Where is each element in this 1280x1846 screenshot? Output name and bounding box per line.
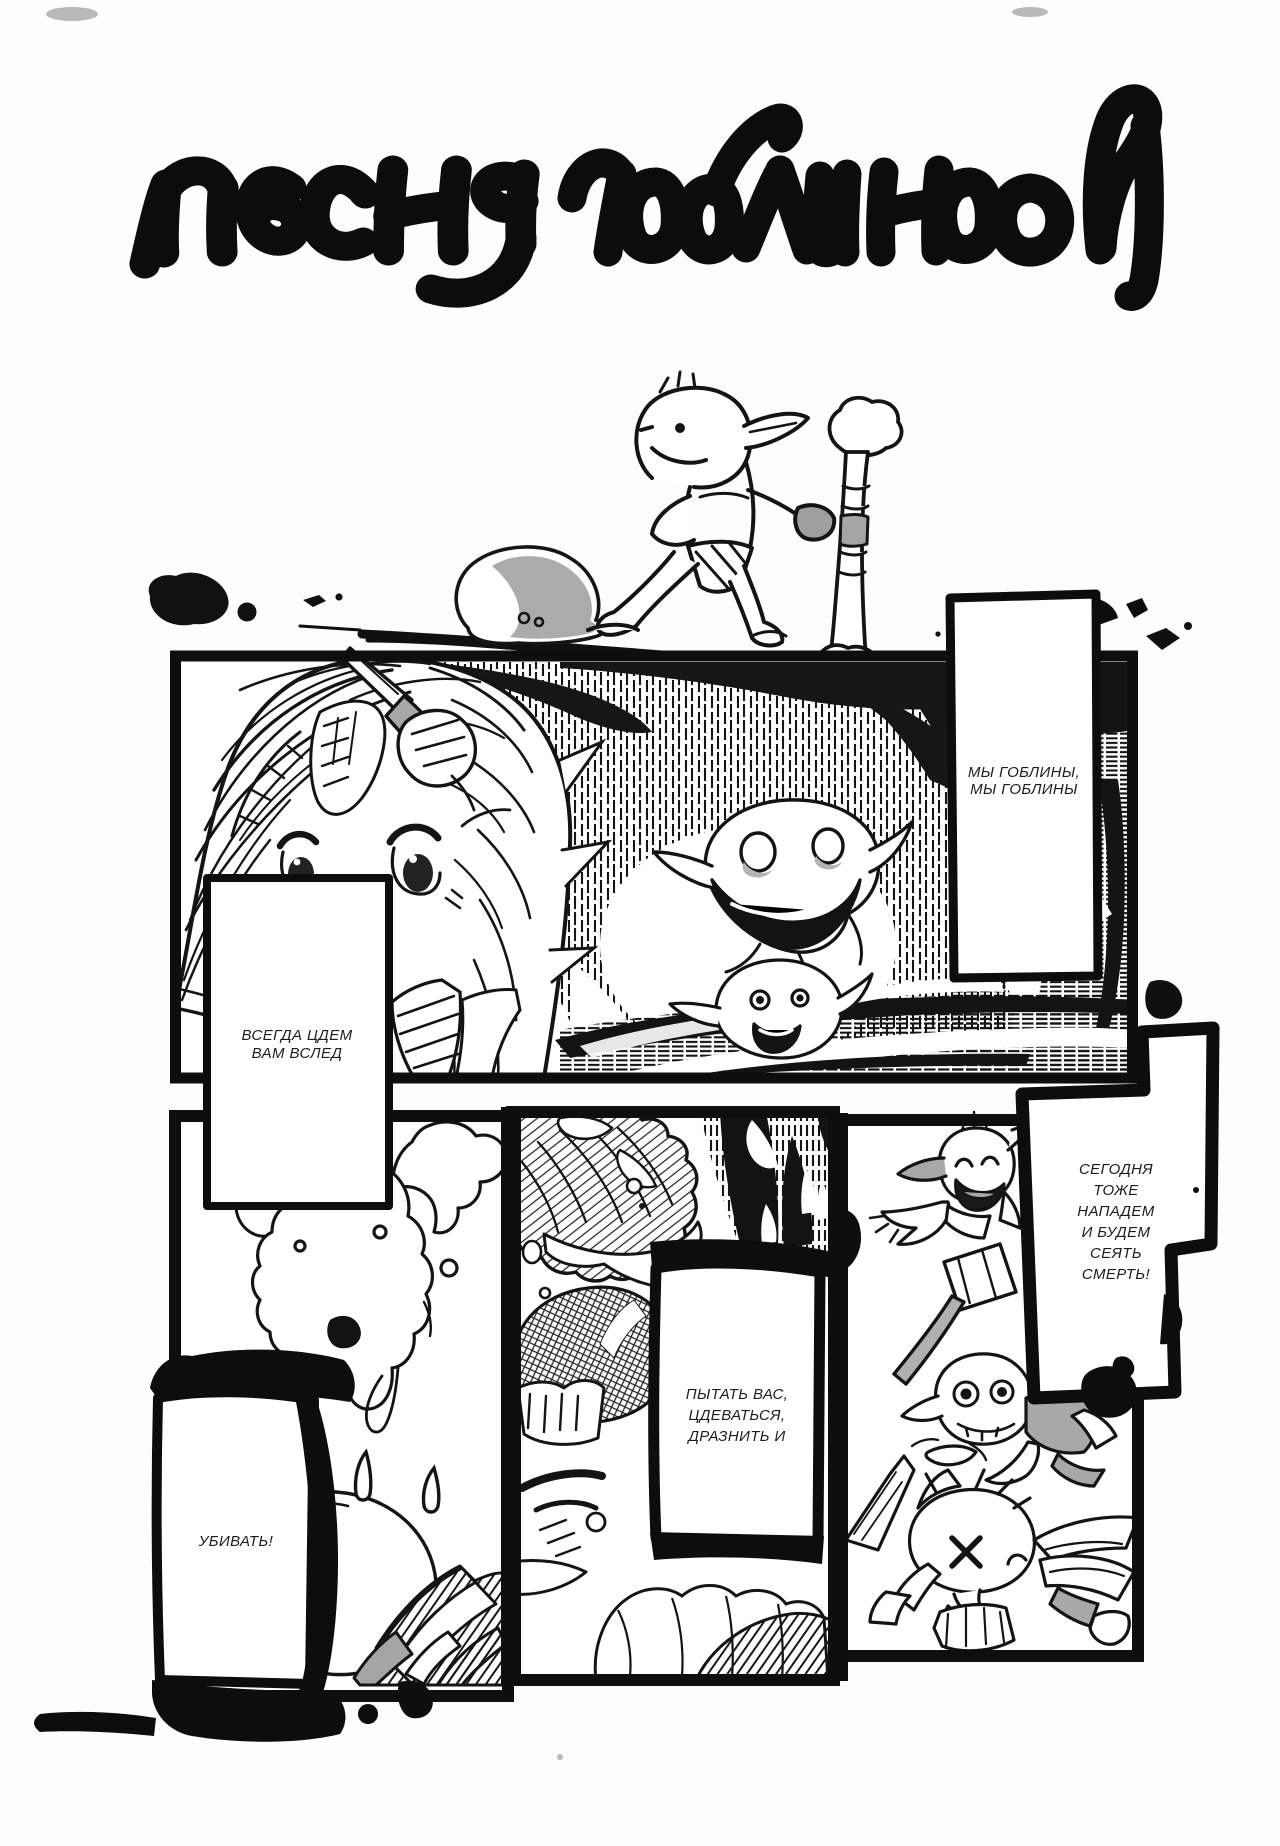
svg-text:ПЫТАТЬ ВАС,: ПЫТАТЬ ВАС, [686, 1386, 789, 1403]
svg-text:ТОЖЕ: ТОЖЕ [1093, 1182, 1139, 1199]
svg-text:УБИВАТЬ!: УБИВАТЬ! [198, 1533, 274, 1550]
svg-text:СЕГОДНЯ: СЕГОДНЯ [1079, 1161, 1153, 1178]
svg-text:ВСЕГДА ЦДЕМ: ВСЕГДА ЦДЕМ [241, 1027, 352, 1044]
svg-text:ЦДЕВАТЬСЯ,: ЦДЕВАТЬСЯ, [689, 1407, 786, 1424]
svg-text:И БУДЕМ: И БУДЕМ [1082, 1224, 1151, 1241]
svg-text:ВАМ ВСЛЕД: ВАМ ВСЛЕД [252, 1045, 343, 1062]
svg-text:ДРАЗНИТЬ И: ДРАЗНИТЬ И [686, 1428, 785, 1445]
svg-text:СЕЯТЬ: СЕЯТЬ [1090, 1245, 1142, 1262]
svg-text:МЫ ГОБЛИНЫ,: МЫ ГОБЛИНЫ, [968, 764, 1080, 781]
svg-text:НАПАДЕМ: НАПАДЕМ [1077, 1203, 1155, 1220]
svg-text:МЫ ГОБЛИНЫ: МЫ ГОБЛИНЫ [970, 781, 1078, 798]
svg-text:СМЕРТЬ!: СМЕРТЬ! [1082, 1266, 1151, 1283]
